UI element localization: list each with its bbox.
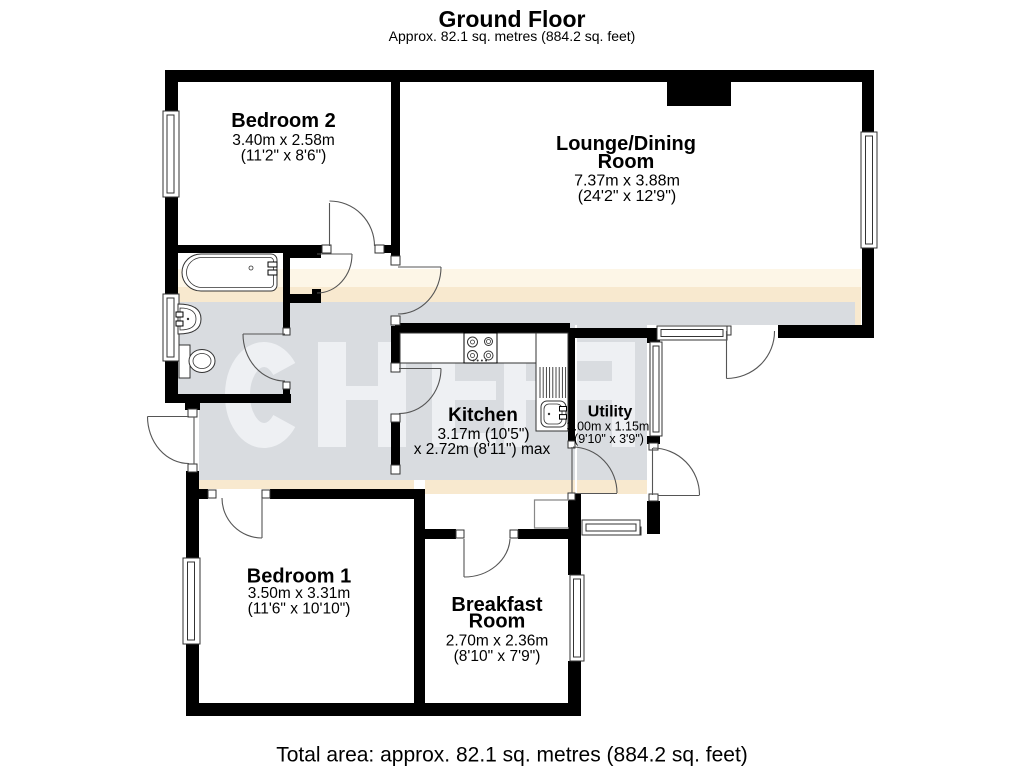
svg-text:Total area: approx. 82.1 sq. m: Total area: approx. 82.1 sq. metres (884… — [276, 744, 748, 767]
svg-text:(9'10" x 3'9"): (9'10" x 3'9") — [574, 432, 644, 446]
svg-text:Room: Room — [469, 611, 526, 633]
svg-text:3.40m x 2.58m: 3.40m x 2.58m — [232, 132, 335, 149]
svg-text:7.37m x 3.88m: 7.37m x 3.88m — [574, 173, 680, 190]
svg-text:(8'10" x 7'9"): (8'10" x 7'9") — [454, 648, 541, 665]
svg-text:3.50m x 3.31m: 3.50m x 3.31m — [248, 585, 351, 602]
svg-text:Room: Room — [598, 151, 655, 173]
svg-text:Bedroom 2: Bedroom 2 — [231, 110, 335, 132]
svg-text:Kitchen: Kitchen — [448, 405, 518, 426]
svg-text:(11'6" x 10'10"): (11'6" x 10'10") — [248, 601, 351, 618]
svg-text:Utility: Utility — [588, 404, 633, 421]
svg-text:(24'2" x 12'9"): (24'2" x 12'9") — [578, 188, 676, 205]
svg-text:(11'2" x 8'6"): (11'2" x 8'6") — [241, 147, 327, 164]
svg-text:2.70m x 2.36m: 2.70m x 2.36m — [446, 633, 549, 650]
svg-text:x 2.72m (8'11") max: x 2.72m (8'11") max — [414, 441, 551, 458]
svg-text:Approx. 82.1 sq. metres (884.2: Approx. 82.1 sq. metres (884.2 sq. feet) — [389, 28, 636, 44]
